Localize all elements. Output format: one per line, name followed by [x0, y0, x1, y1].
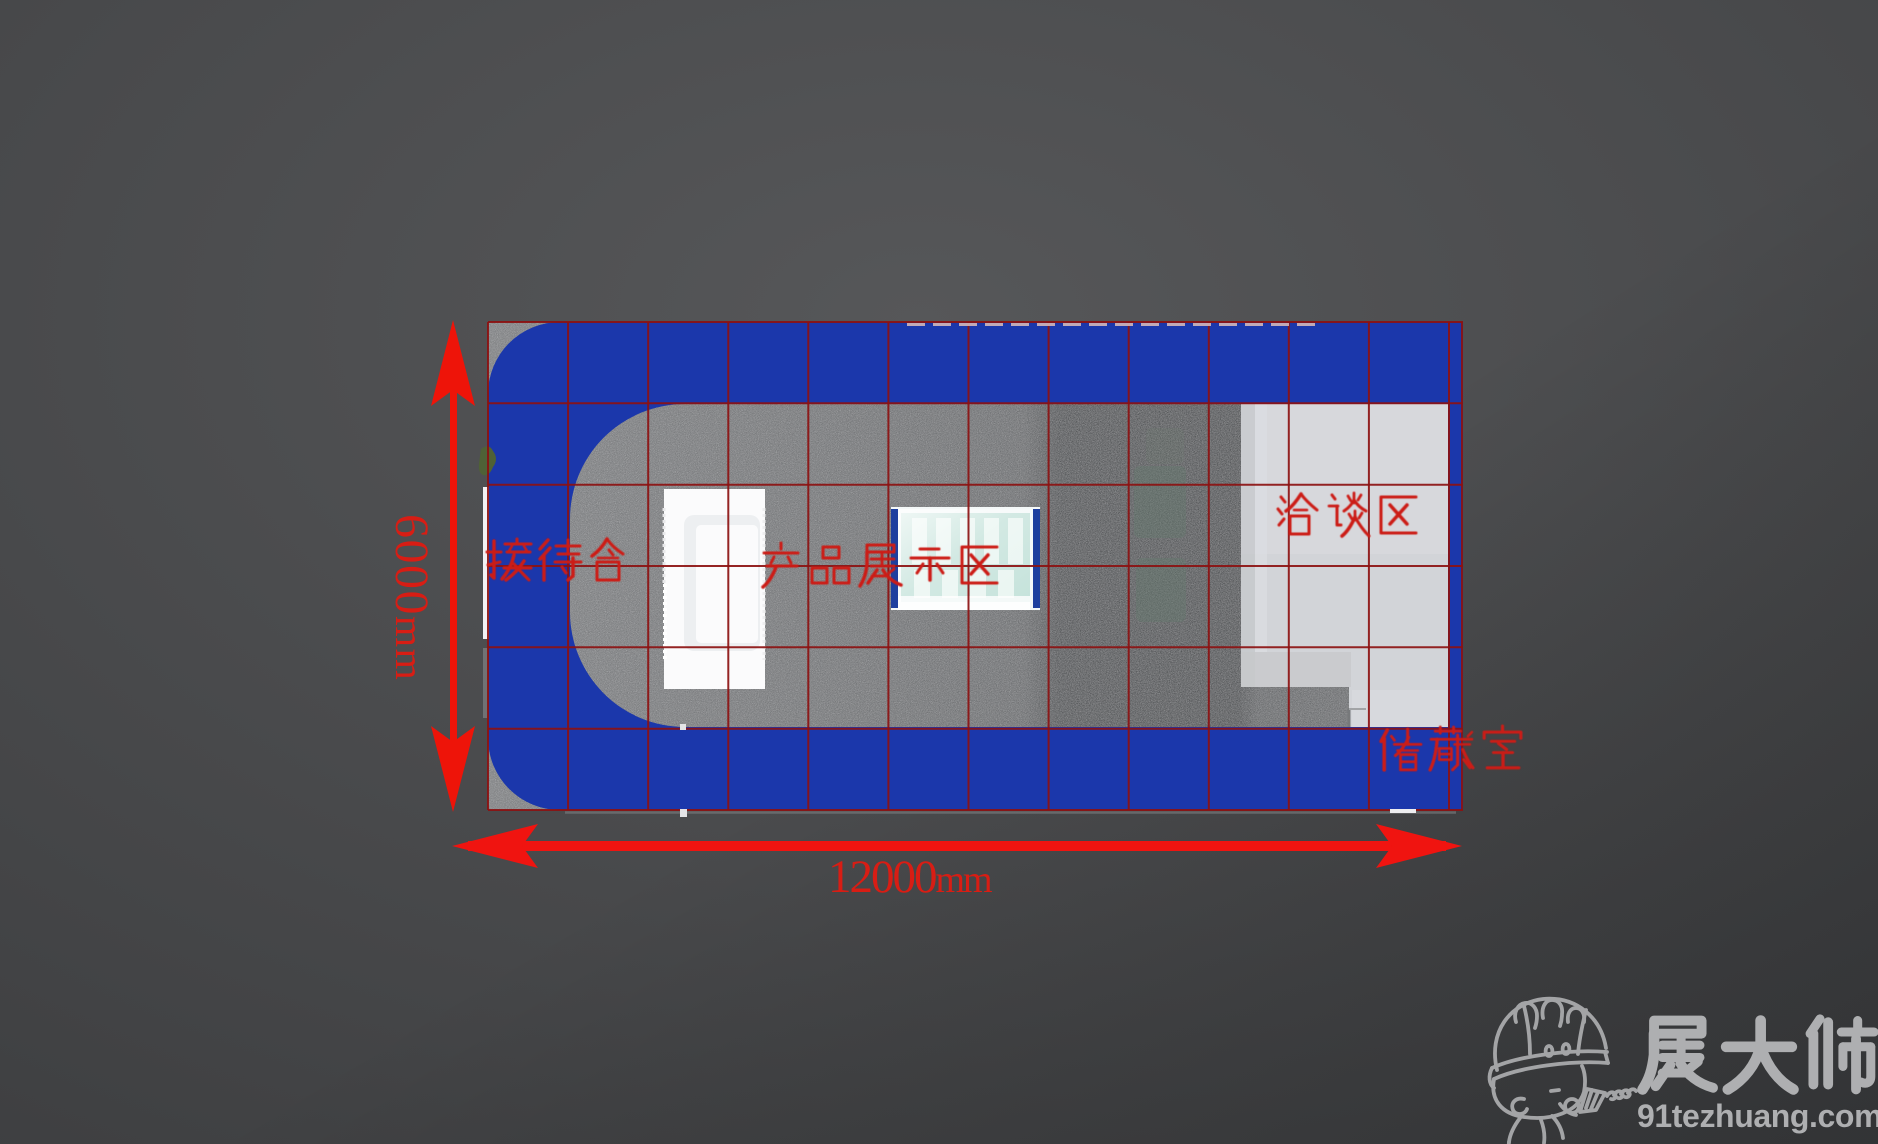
- svg-text:91tezhuang.com: 91tezhuang.com: [1637, 1098, 1878, 1134]
- svg-text:12000mm: 12000mm: [828, 851, 992, 903]
- svg-text:6000mm: 6000mm: [385, 514, 438, 681]
